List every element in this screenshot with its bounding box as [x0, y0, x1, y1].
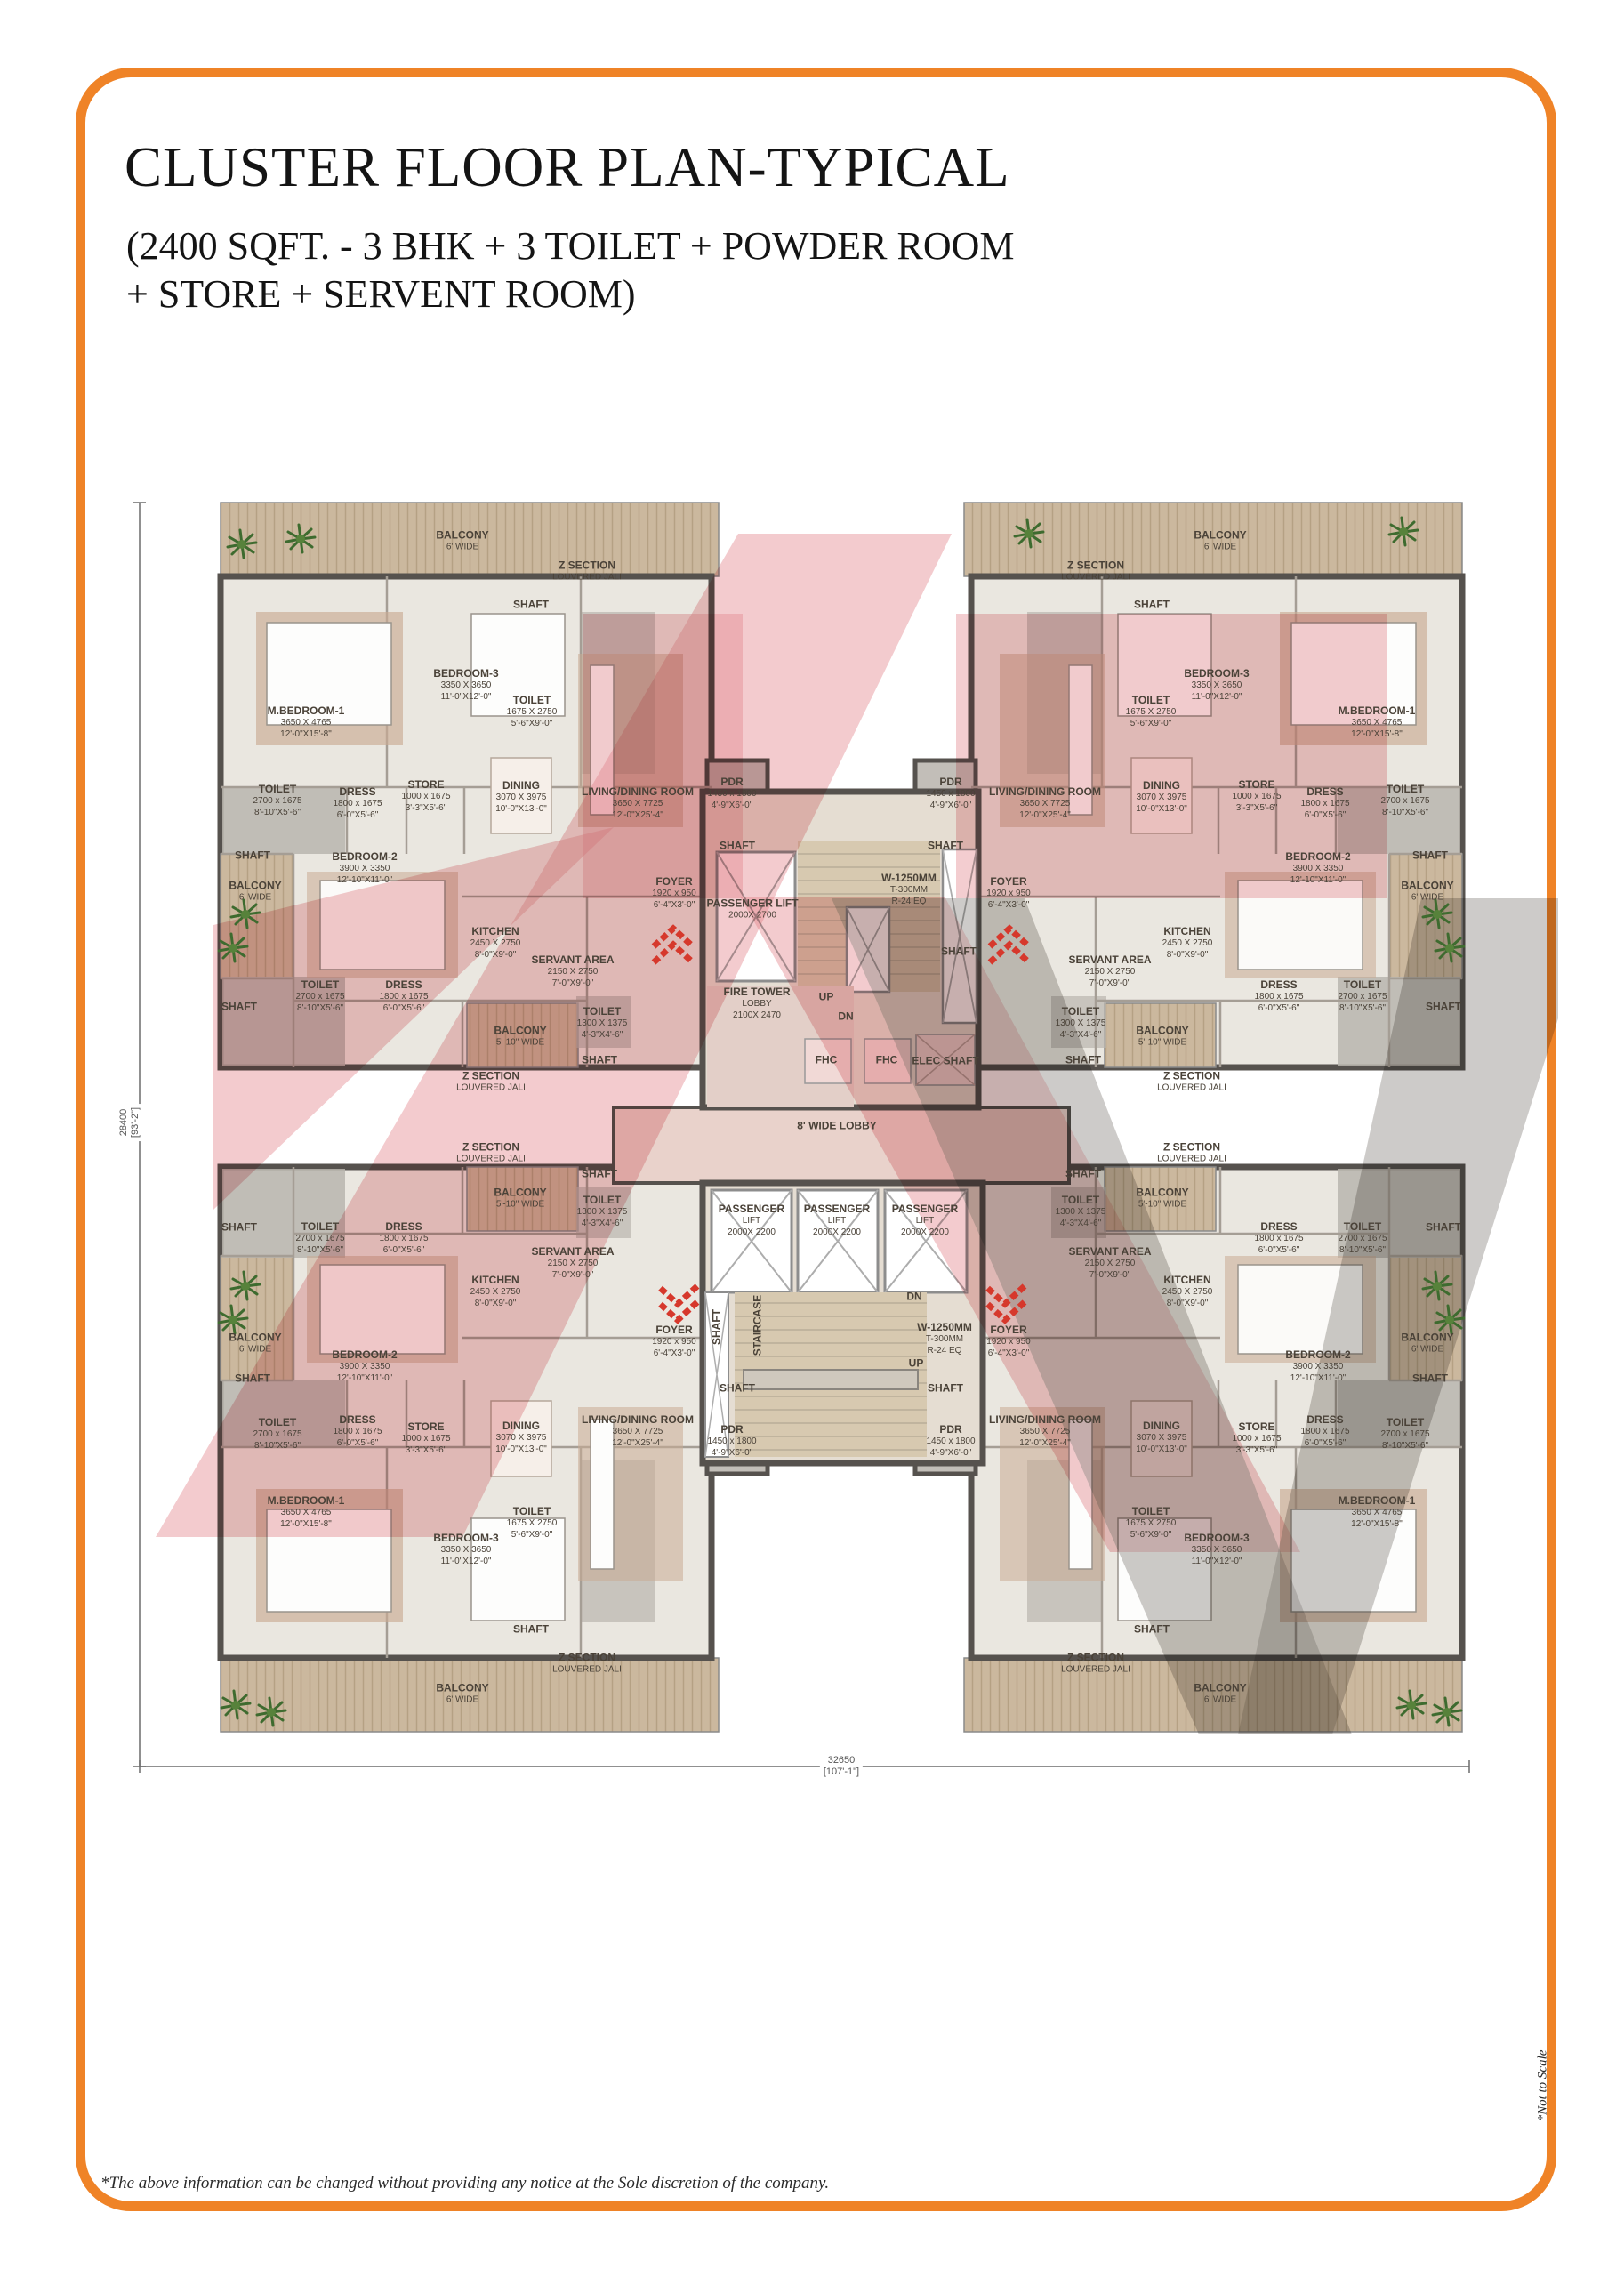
room-label: TOILET2700 x 16758'-10"X5'-6": [1380, 1416, 1429, 1452]
room-label: DRESS1800 x 16756'-0"X5'-6": [379, 1220, 428, 1256]
room-label: TOILET1300 X 13754'-3"X4'-6": [577, 1194, 628, 1229]
room-label: STORE1000 x 16753'-3"X5'-6": [1232, 1420, 1281, 1456]
room-label: DRESS1800 x 16756'-0"X5'-6": [379, 978, 428, 1014]
room-label: FHC: [876, 1054, 898, 1067]
room-label: UP: [909, 1357, 924, 1371]
room-label: SHAFT: [1412, 1372, 1448, 1386]
poster-page: CLUSTER FLOOR PLAN-TYPICAL (2400 SQFT. -…: [0, 0, 1624, 2277]
room-label: DRESS1800 x 16756'-0"X5'-6": [333, 1413, 382, 1449]
room-label: BALCONY6' WIDE: [1401, 879, 1453, 904]
room-label: DRESS1800 x 16756'-0"X5'-6": [1254, 978, 1303, 1014]
room-label: LIVING/DINING ROOM3650 X 772512'-0"X25'-…: [582, 785, 694, 821]
not-to-scale-note: *Not to Scale: [1536, 2050, 1551, 2122]
room-label: SHAFT: [1134, 1623, 1170, 1637]
room-label: BALCONY5'-10" WIDE: [1136, 1186, 1188, 1211]
room-label: DN: [906, 1291, 921, 1304]
room-label: BALCONY5'-10" WIDE: [494, 1024, 546, 1049]
plan-labels: BALCONY6' WIDEBALCONY6' WIDEBALCONY6' WI…: [0, 0, 1624, 2277]
room-label: BEDROOM-33350 X 365011'-0"X12'-0": [433, 1532, 498, 1567]
room-label: SHAFT: [235, 1372, 270, 1386]
room-label: BEDROOM-23900 X 335012'-10"X11'-0": [1285, 1348, 1350, 1384]
room-label: STORE1000 x 16753'-3"X5'-6": [401, 1420, 450, 1456]
room-label: PDR1450 x 18004'-9"X6'-0": [926, 1423, 975, 1459]
room-label: UP: [819, 991, 834, 1004]
room-label: SHAFT: [1065, 1168, 1101, 1181]
height-dimension: 28400 [93'-2"]: [117, 1104, 142, 1141]
room-label: Z SECTIONLOUVERED JALI: [552, 559, 622, 583]
room-label: Z SECTIONLOUVERED JALI: [1061, 1651, 1130, 1676]
room-label: SHAFT: [1065, 1054, 1101, 1067]
room-label: SHAFT: [221, 1221, 257, 1235]
room-label: Z SECTIONLOUVERED JALI: [552, 1651, 622, 1676]
room-label: KITCHEN2450 X 27508'-0"X9'-0": [1162, 1274, 1213, 1309]
room-label: SHAFT: [720, 840, 755, 853]
disclaimer-note: *The above information can be changed wi…: [100, 2174, 829, 2193]
room-label: BALCONY6' WIDE: [436, 1681, 488, 1706]
room-label: LIVING/DINING ROOM3650 X 772512'-0"X25'-…: [582, 1413, 694, 1449]
room-label: SHAFT: [720, 1382, 755, 1396]
room-label: FHC: [816, 1054, 838, 1067]
room-label: TOILET2700 x 16758'-10"X5'-6": [253, 783, 301, 818]
room-label: DRESS1800 x 16756'-0"X5'-6": [1254, 1220, 1303, 1256]
room-label: PASSENGERLIFT2000X 2200: [719, 1203, 784, 1238]
room-label: TOILET1300 X 13754'-3"X4'-6": [1056, 1194, 1106, 1229]
room-label: BALCONY6' WIDE: [1194, 528, 1246, 553]
room-label: M.BEDROOM-13650 X 476512'-0"X15'-8": [268, 1494, 345, 1530]
room-label: PASSENGER LIFT2000X 2700: [706, 897, 798, 921]
room-label: FOYER1920 x 9506'-4"X3'-0": [986, 1324, 1031, 1359]
room-label: STAIRCASE: [752, 1295, 765, 1356]
room-label: TOILET2700 x 16758'-10"X5'-6": [1338, 978, 1387, 1014]
room-label: SHAFT: [582, 1168, 617, 1181]
room-label: TOILET2700 x 16758'-10"X5'-6": [1338, 1220, 1387, 1256]
room-label: FOYER1920 x 9506'-4"X3'-0": [652, 875, 696, 911]
room-label: DINING3070 X 397510'-0"X13'-0": [495, 779, 547, 815]
room-label: SHAFT: [221, 1001, 257, 1014]
room-label: SHAFT: [1426, 1001, 1461, 1014]
room-label: DINING3070 X 397510'-0"X13'-0": [1136, 1420, 1187, 1455]
room-label: DINING3070 X 397510'-0"X13'-0": [495, 1420, 547, 1455]
room-label: PDR1450 x 18004'-9"X6'-0": [926, 776, 975, 811]
room-label: Z SECTIONLOUVERED JALI: [456, 1140, 526, 1165]
room-label: TOILET2700 x 16758'-10"X5'-6": [253, 1416, 301, 1452]
room-label: KITCHEN2450 X 27508'-0"X9'-0": [470, 925, 521, 961]
room-label: FIRE TOWERLOBBY2100X 2470: [723, 986, 790, 1021]
room-label: TOILET1675 X 27505'-6"X9'-0": [507, 694, 558, 729]
room-label: DRESS1800 x 16756'-0"X5'-6": [333, 785, 382, 821]
room-label: SHAFT: [582, 1054, 617, 1067]
room-label: BEDROOM-33350 X 365011'-0"X12'-0": [1184, 1532, 1249, 1567]
room-label: SHAFT: [941, 945, 977, 959]
room-label: TOILET2700 x 16758'-10"X5'-6": [295, 978, 344, 1014]
room-label: TOILET1300 X 13754'-3"X4'-6": [577, 1005, 628, 1041]
room-label: BEDROOM-33350 X 365011'-0"X12'-0": [433, 667, 498, 703]
room-label: M.BEDROOM-13650 X 476512'-0"X15'-8": [1339, 1494, 1416, 1530]
room-label: SERVANT AREA2150 X 27507'-0"X9'-0": [531, 1245, 614, 1281]
room-label: SERVANT AREA2150 X 27507'-0"X9'-0": [531, 953, 614, 989]
room-label: SHAFT: [1426, 1221, 1461, 1235]
room-label: M.BEDROOM-13650 X 476512'-0"X15'-8": [268, 704, 345, 740]
room-label: KITCHEN2450 X 27508'-0"X9'-0": [470, 1274, 521, 1309]
room-label: TOILET2700 x 16758'-10"X5'-6": [295, 1220, 344, 1256]
room-label: TOILET1675 X 27505'-6"X9'-0": [1126, 694, 1177, 729]
room-label: Z SECTIONLOUVERED JALI: [456, 1069, 526, 1094]
room-label: PASSENGERLIFT2000X 2200: [804, 1203, 870, 1238]
room-label: BEDROOM-33350 X 365011'-0"X12'-0": [1184, 667, 1249, 703]
room-label: KITCHEN2450 X 27508'-0"X9'-0": [1162, 925, 1213, 961]
room-label: SERVANT AREA2150 X 27507'-0"X9'-0": [1068, 953, 1151, 989]
room-label: W-1250MMT-300MMR-24 EQ: [881, 872, 937, 907]
room-label: SHAFT: [513, 1623, 549, 1637]
room-label: SHAFT: [928, 1382, 963, 1396]
room-label: SHAFT: [928, 840, 963, 853]
room-label: DINING3070 X 397510'-0"X13'-0": [1136, 779, 1187, 815]
room-label: PDR1450 x 18004'-9"X6'-0": [707, 1423, 756, 1459]
room-label: BALCONY6' WIDE: [1194, 1681, 1246, 1706]
room-label: DN: [838, 1010, 853, 1024]
room-label: SHAFT: [1134, 599, 1170, 612]
room-label: ELEC SHAFT: [912, 1055, 978, 1068]
room-label: BALCONY5'-10" WIDE: [1136, 1024, 1188, 1049]
room-label: STORE1000 x 16753'-3"X5'-6": [1232, 778, 1281, 814]
room-label: W-1250MMT-300MMR-24 EQ: [917, 1321, 972, 1356]
room-label: M.BEDROOM-13650 X 476512'-0"X15'-8": [1339, 704, 1416, 740]
room-label: PASSENGERLIFT2000X 2200: [892, 1203, 958, 1238]
room-label: Z SECTIONLOUVERED JALI: [1157, 1069, 1226, 1094]
room-label: SHAFT: [235, 849, 270, 863]
room-label: FOYER1920 x 9506'-4"X3'-0": [986, 875, 1031, 911]
room-label: TOILET1675 X 27505'-6"X9'-0": [1126, 1505, 1177, 1541]
room-label: BALCONY6' WIDE: [1401, 1331, 1453, 1356]
room-label: 8' WIDE LOBBY: [797, 1120, 877, 1133]
room-label: Z SECTIONLOUVERED JALI: [1061, 559, 1130, 583]
room-label: LIVING/DINING ROOM3650 X 772512'-0"X25'-…: [989, 785, 1101, 821]
room-label: STORE1000 x 16753'-3"X5'-6": [401, 778, 450, 814]
room-label: SHAFT: [711, 1309, 724, 1345]
room-label: TOILET1300 X 13754'-3"X4'-6": [1056, 1005, 1106, 1041]
room-label: SERVANT AREA2150 X 27507'-0"X9'-0": [1068, 1245, 1151, 1281]
room-label: SHAFT: [513, 599, 549, 612]
room-label: TOILET1675 X 27505'-6"X9'-0": [507, 1505, 558, 1541]
room-label: DRESS1800 x 16756'-0"X5'-6": [1300, 1413, 1349, 1449]
room-label: BALCONY6' WIDE: [436, 528, 488, 553]
room-label: BEDROOM-23900 X 335012'-10"X11'-0": [332, 1348, 397, 1384]
room-label: BALCONY5'-10" WIDE: [494, 1186, 546, 1211]
room-label: BALCONY6' WIDE: [229, 879, 281, 904]
room-label: FOYER1920 x 9506'-4"X3'-0": [652, 1324, 696, 1359]
room-label: DRESS1800 x 16756'-0"X5'-6": [1300, 785, 1349, 821]
room-label: BEDROOM-23900 X 335012'-10"X11'-0": [332, 850, 397, 886]
room-label: LIVING/DINING ROOM3650 X 772512'-0"X25'-…: [989, 1413, 1101, 1449]
room-label: PDR1450 x 18004'-9"X6'-0": [707, 776, 756, 811]
room-label: BEDROOM-23900 X 335012'-10"X11'-0": [1285, 850, 1350, 886]
width-dimension: 32650 [107'-1"]: [820, 1754, 863, 1779]
room-label: BALCONY6' WIDE: [229, 1331, 281, 1356]
room-label: TOILET2700 x 16758'-10"X5'-6": [1380, 783, 1429, 818]
room-label: Z SECTIONLOUVERED JALI: [1157, 1140, 1226, 1165]
room-label: SHAFT: [1412, 849, 1448, 863]
